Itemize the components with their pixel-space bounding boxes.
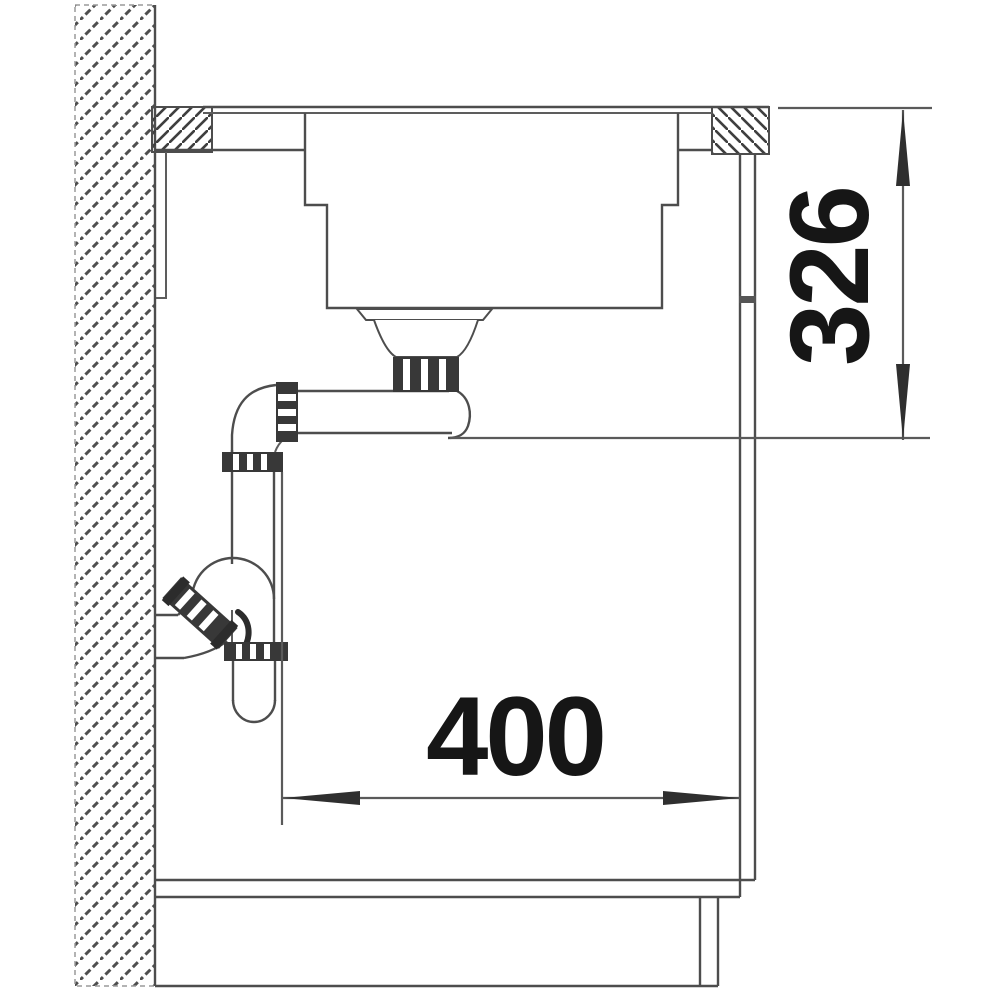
technical-drawing-sink-cross-section: 326 400 [0,0,1000,1000]
elbow-nut-rib [278,394,296,401]
back-panel-line [156,152,166,298]
siphon-trap [155,558,288,722]
downpipe-nut-rib [233,454,239,470]
dip-tube-u-bend [233,700,275,722]
downpipe-nut-rib [261,454,267,470]
arrow-right-icon [663,791,740,805]
drawing-canvas: 326 400 [0,0,1000,1000]
trap-nut-rib [250,644,256,659]
countertop [152,107,769,298]
strainer-nut-rib [439,359,446,390]
arrow-left-icon [283,791,360,805]
drain-elbow-outer-curve [448,391,470,438]
drain-assembly [222,309,492,599]
trap-nut-rib [264,644,270,659]
cabinet-side-joint-tick [739,296,756,303]
strainer-body [374,320,478,357]
dimension-label-400: 400 [426,674,604,799]
wall-hatching [75,5,155,986]
dimension-326: 326 [450,108,932,440]
strainer-nut-rib [421,359,428,390]
pipe-elbow-outer-curve [232,385,276,452]
trap-nut-rib [236,644,242,659]
elbow-nut-rib [278,424,296,431]
trap-dome-curve [192,558,274,599]
drain-flange [357,309,492,320]
dimension-label-326: 326 [767,188,892,366]
sink-bowl-profile [305,113,678,308]
trap-diagonal-coupling [161,576,239,651]
sink-basin [305,113,678,308]
strainer-nut-rib [403,359,410,390]
wall-section [75,5,155,986]
elbow-nut-rib [278,409,296,416]
arrow-up-icon [896,110,910,186]
cabinet [155,155,756,986]
dimension-400: 400 [282,472,740,825]
countertop-edge-section [712,107,769,154]
arrow-down-icon [896,364,910,440]
downpipe-nut-rib [247,454,253,470]
